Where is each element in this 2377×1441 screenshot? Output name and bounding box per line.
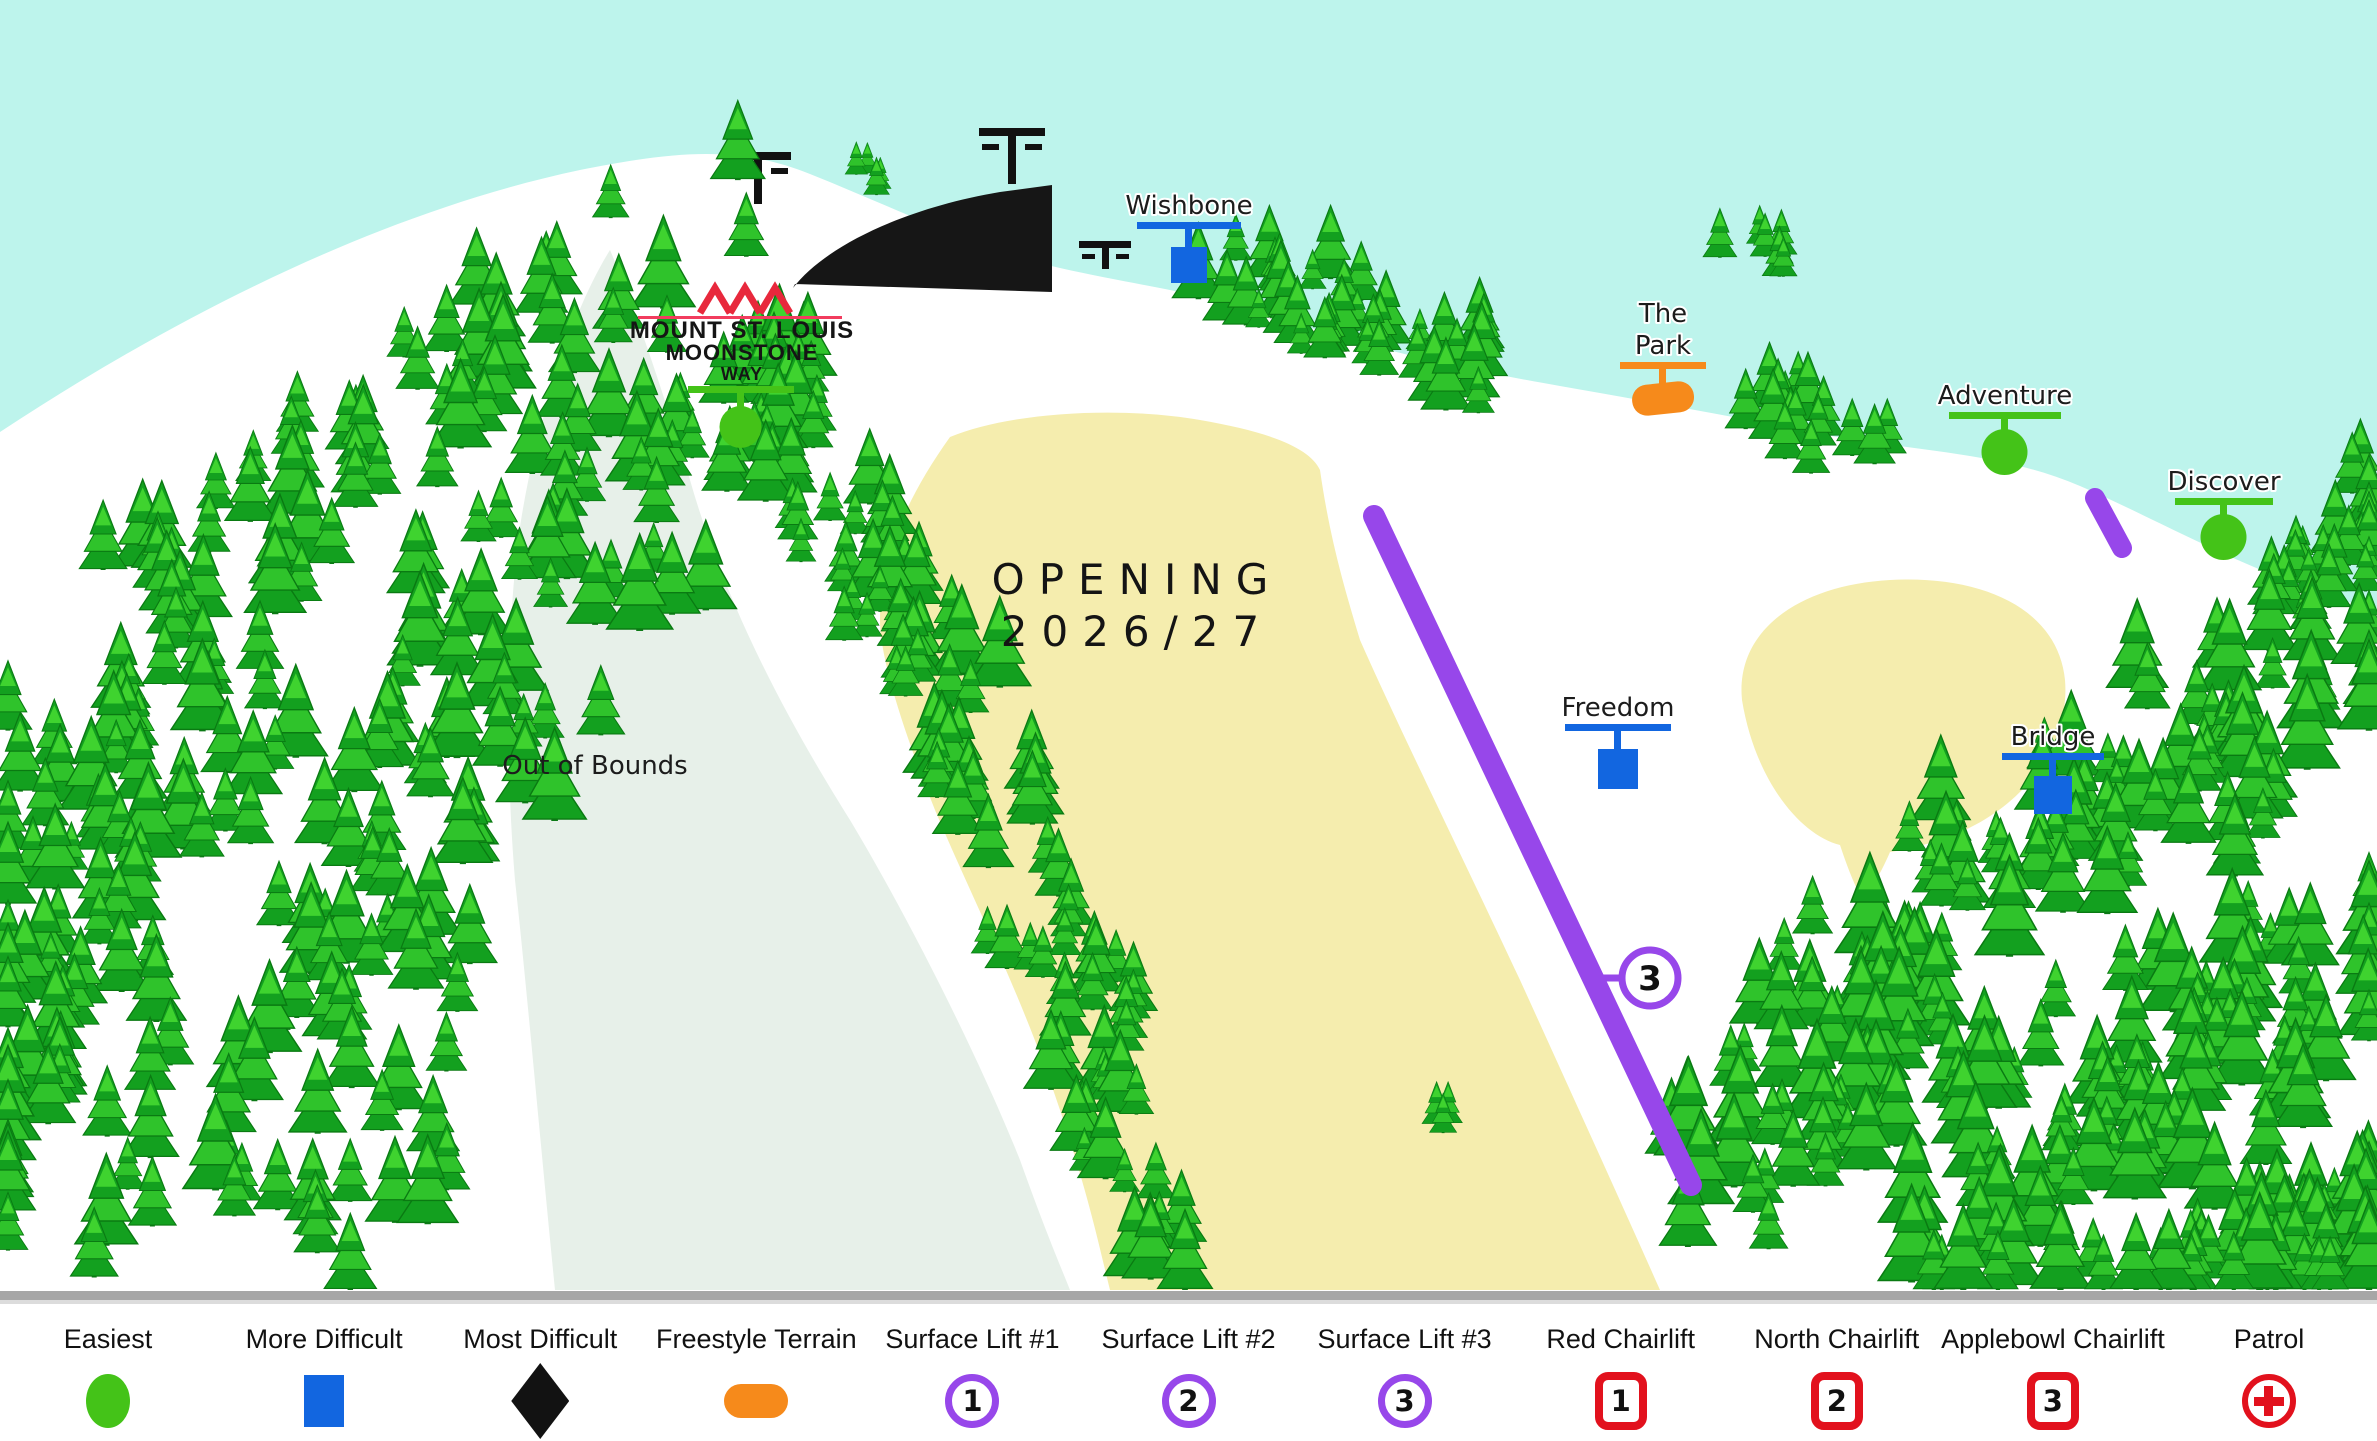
legend-item-surface-lift-3: Surface Lift #3 3 bbox=[1297, 1304, 1513, 1441]
surface-lift-3-number: 3 bbox=[1638, 959, 1662, 999]
run-label-the-park-line2: Park bbox=[1635, 331, 1691, 361]
legend-item-surface-lift-1: Surface Lift #1 1 bbox=[864, 1304, 1080, 1441]
run-label-discover: Discover bbox=[2167, 467, 2280, 497]
legend-item-more-difficult: More Difficult bbox=[216, 1304, 432, 1441]
legend-label: Easiest bbox=[64, 1324, 153, 1355]
freestyle-terrain-icon bbox=[724, 1384, 788, 1418]
legend-item-surface-lift-2: Surface Lift #2 2 bbox=[1080, 1304, 1296, 1441]
applebowl-chairlift-number: 3 bbox=[2043, 1384, 2063, 1418]
legend-label: North Chairlift bbox=[1754, 1324, 1919, 1355]
applebowl-chairlift-icon: 3 bbox=[2027, 1372, 2079, 1430]
red-chairlift-number: 1 bbox=[1611, 1384, 1631, 1418]
most-difficult-run-icon bbox=[511, 1363, 569, 1439]
surface-lift-2-number: 2 bbox=[1178, 1384, 1198, 1418]
legend-label: Red Chairlift bbox=[1546, 1324, 1695, 1355]
surface-lift-3-number: 3 bbox=[1395, 1384, 1415, 1418]
legend-label: Surface Lift #1 bbox=[885, 1324, 1059, 1355]
legend-label: Applebowl Chairlift bbox=[1941, 1324, 2165, 1355]
legend-item-applebowl-chairlift: Applebowl Chairlift 3 bbox=[1945, 1304, 2161, 1441]
trail-map-canvas: 3 MOUNT ST. LOUIS MOONSTONE WAY Wishbone… bbox=[0, 0, 2377, 1304]
more-difficult-run-icon bbox=[304, 1375, 344, 1427]
run-label-freedom: Freedom bbox=[1562, 693, 1675, 723]
run-label-bridge: Bridge bbox=[2011, 722, 2096, 752]
legend-label: More Difficult bbox=[246, 1324, 403, 1355]
run-label-the-park-line1: The bbox=[1638, 299, 1687, 329]
trail-map-stage: 3 MOUNT ST. LOUIS MOONSTONE WAY Wishbone… bbox=[0, 0, 2377, 1441]
surface-lift-1-icon: 1 bbox=[945, 1374, 999, 1428]
legend-label: Freestyle Terrain bbox=[656, 1324, 857, 1355]
legend-item-red-chairlift: Red Chairlift 1 bbox=[1513, 1304, 1729, 1441]
run-label-wishbone: Wishbone bbox=[1125, 191, 1252, 221]
legend-bar: Easiest More Difficult Most Difficult Fr… bbox=[0, 1304, 2377, 1441]
legend-item-most-difficult: Most Difficult bbox=[432, 1304, 648, 1441]
run-label-adventure: Adventure bbox=[1938, 381, 2072, 411]
opening-banner-line1: OPENING bbox=[992, 555, 1283, 604]
legend-label: Most Difficult bbox=[463, 1324, 617, 1355]
legend-item-freestyle-terrain: Freestyle Terrain bbox=[648, 1304, 864, 1441]
surface-lift-3-icon: 3 bbox=[1378, 1374, 1432, 1428]
patrol-icon bbox=[2242, 1374, 2296, 1428]
surface-lift-2-icon: 2 bbox=[1162, 1374, 1216, 1428]
opening-banner-line2: 2026/27 bbox=[1001, 607, 1273, 656]
legend-item-patrol: Patrol bbox=[2161, 1304, 2377, 1441]
legend-label: Patrol bbox=[2234, 1324, 2305, 1355]
legend-item-north-chairlift: North Chairlift 2 bbox=[1729, 1304, 1945, 1441]
north-chairlift-icon: 2 bbox=[1811, 1372, 1863, 1430]
easiest-run-icon bbox=[86, 1374, 130, 1428]
legend-label: Surface Lift #2 bbox=[1101, 1324, 1275, 1355]
out-of-bounds-label: Out of Bounds bbox=[502, 751, 687, 781]
logo-line3: WAY bbox=[721, 364, 763, 384]
legend-item-easiest: Easiest bbox=[0, 1304, 216, 1441]
legend-label: Surface Lift #3 bbox=[1318, 1324, 1492, 1355]
north-chairlift-number: 2 bbox=[1827, 1384, 1847, 1418]
logo-line2: MOONSTONE bbox=[666, 340, 819, 365]
surface-lift-1-number: 1 bbox=[962, 1384, 982, 1418]
access-road bbox=[0, 1291, 2377, 1300]
red-chairlift-icon: 1 bbox=[1595, 1372, 1647, 1430]
